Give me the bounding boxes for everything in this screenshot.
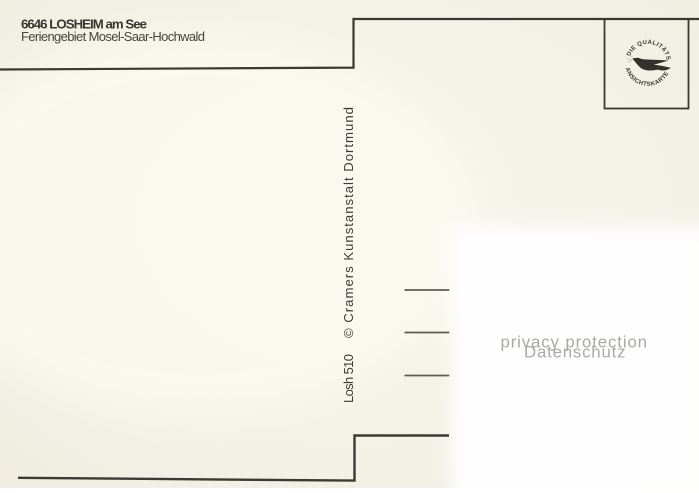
svg-text:Feriengebiet Mosel-Saar-Hochwa: Feriengebiet Mosel-Saar-Hochwald [21, 29, 205, 44]
svg-text:Datenschutz: Datenschutz [524, 343, 626, 362]
svg-text:Losh 510: Losh 510 [341, 354, 356, 403]
svg-text:© Cramers Kunstanstalt Dortmun: © Cramers Kunstanstalt Dortmund [341, 107, 356, 338]
